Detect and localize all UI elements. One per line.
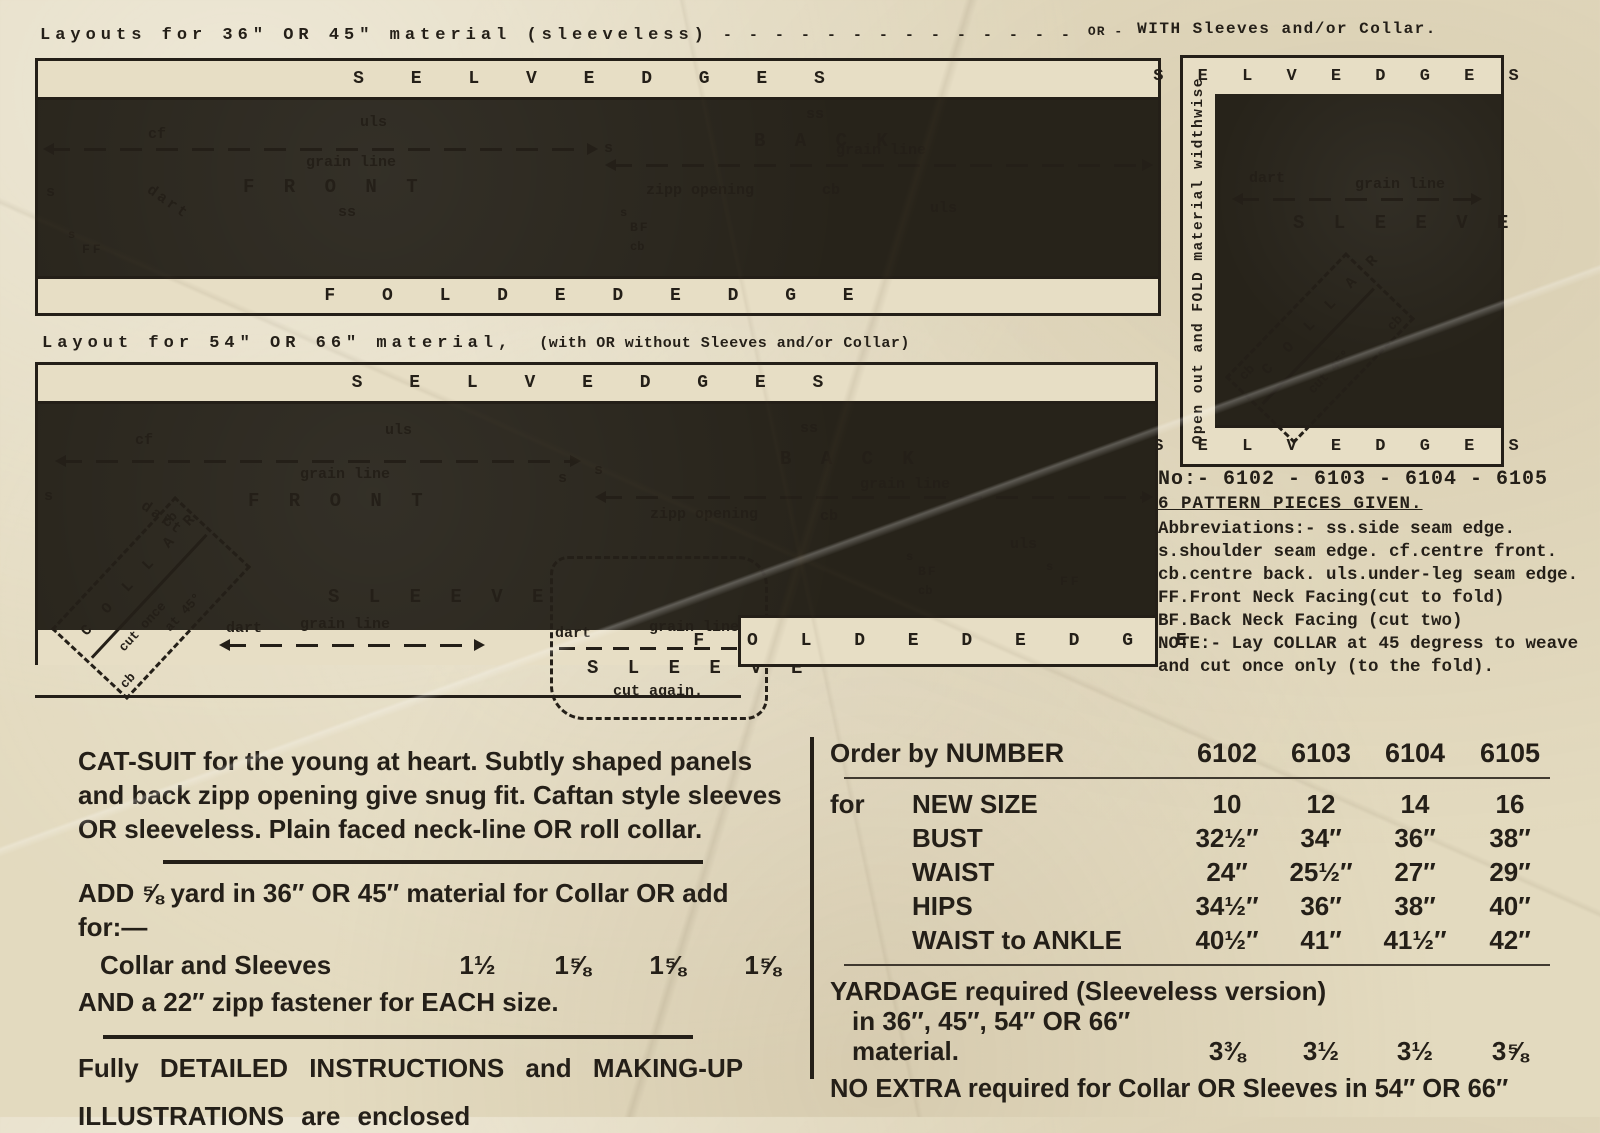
yardage-value: 3½ (1368, 1036, 1462, 1067)
zipp-opening-label: zipp opening (646, 182, 754, 199)
cb-label: cb (1384, 312, 1406, 334)
zipp-fastener-line: AND a 22″ zipp fastener for EACH size. (78, 985, 802, 1019)
pattern-piece-back (600, 104, 1152, 238)
size-row-label: HIPS (912, 891, 1180, 922)
yardage-line: in 36″, 45″, 54″ OR 66″ (852, 1006, 1566, 1036)
front-piece-label: F R O N T (248, 490, 432, 512)
cb-label: cb (820, 508, 838, 525)
grain-line (48, 148, 593, 151)
dart-label: dart (555, 625, 591, 642)
no-extra-line: NO EXTRA required for Collar OR Sleeves … (830, 1075, 1566, 1104)
grain-line (1237, 198, 1477, 201)
layout2-title-row: Layout for 54″ OR 66″ material, (with OR… (42, 334, 910, 353)
title-dashes: - - - - - - - - - - - - - - (723, 27, 1074, 44)
abbreviations-line: Abbreviations:- ss.side seam edge. (1158, 518, 1600, 541)
order-size-block: Order by NUMBER 6102 6103 6104 6105 for … (830, 738, 1566, 1130)
column-divider-line (810, 737, 814, 1079)
abbreviations-line: FF.Front Neck Facing(cut to fold) (1158, 587, 1600, 610)
size-value: 36″ (1368, 823, 1462, 854)
selvedges-strip: S E L V E D G E S (1183, 425, 1501, 464)
with-sleeves-label: WITH Sleeves and/or Collar. (1137, 20, 1437, 38)
grain-line-label: grain line (860, 476, 950, 493)
folded-edge-strip: F O L D E D E D G E (38, 276, 1158, 313)
size-value: 27″ (1368, 857, 1462, 888)
size-value: 29″ (1462, 857, 1558, 888)
collar-sleeves-label: Collar and Sleeves (100, 950, 430, 981)
grain-line-label: grain line (300, 616, 390, 633)
cb-label: cb (630, 240, 644, 254)
instructions-line: ILLUSTRATIONS are enclosed (78, 1099, 802, 1133)
folded-edge-label: F O L D E D E D G E (693, 631, 1202, 651)
uls-label: uls (385, 422, 412, 439)
bf-label: BF (918, 564, 938, 579)
description-line: OR sleeveless. Plain faced neck-line OR … (78, 812, 802, 846)
layout1-title: Layouts for 36″ OR 45″ material (sleevel… (40, 26, 709, 45)
at-45-label: at 45° (162, 590, 205, 634)
description-line: CAT-SUIT for the young at heart. Subtly … (78, 744, 802, 778)
collar-sleeves-row: Collar and Sleeves 1½ 1⅝ 1⅝ 1⅝ (100, 950, 802, 981)
pattern-number: 6104 (1368, 738, 1462, 769)
yardage-values-row: material. 3⅜ 3½ 3½ 3⅝ (830, 1036, 1566, 1067)
size-value: 12 (1274, 789, 1368, 820)
cut-45-label: cut 45° (1305, 347, 1354, 397)
cutting-layout-54-66: S E L V E D G E S cf uls grain line F R … (35, 362, 1158, 665)
size-table-row: WAIST 24″ 25½″ 27″ 29″ (830, 857, 1566, 888)
s-label: s (46, 184, 55, 201)
size-value: 41½″ (1368, 925, 1462, 956)
s-label: s (44, 488, 53, 505)
uls-label: uls (1010, 536, 1037, 553)
cf-label: cf (135, 432, 153, 449)
size-row-label: NEW SIZE (912, 789, 1180, 820)
s-label: s (906, 550, 913, 564)
cf-label: cf (148, 126, 166, 143)
size-row-label: BUST (912, 823, 1180, 854)
selvedges-label: S E L V E D G E S (1153, 67, 1530, 86)
fabric-area-2: cf uls grain line F R O N T s s dart ss … (38, 404, 1155, 630)
grain-line (610, 164, 1148, 167)
pattern-info-block: No:- 6102 - 6103 - 6104 - 6105 6 PATTERN… (1158, 468, 1600, 679)
size-value: 34″ (1274, 823, 1368, 854)
dart-label: dart (1249, 170, 1285, 187)
s-label: s (604, 140, 613, 157)
collar-sleeves-value: 1⅝ (525, 950, 620, 981)
layout2-subtitle: (with OR without Sleeves and/or Collar) (539, 335, 910, 352)
selvedges-label: S E L V E D G E S (1153, 437, 1530, 456)
order-by-label: Order by NUMBER (830, 738, 1180, 769)
s-label: s (68, 228, 75, 242)
s-label: s (558, 470, 567, 487)
front-piece-label: F R O N T (243, 176, 427, 198)
size-value: 40½″ (1180, 925, 1274, 956)
size-value: 25½″ (1274, 857, 1368, 888)
sleeve-piece-label: S L E E V E (328, 586, 552, 608)
size-value: 32½″ (1180, 823, 1274, 854)
ss-label: ss (806, 106, 824, 123)
selvedges-label: S E L V E D G E S (353, 69, 843, 89)
size-value: 24″ (1180, 857, 1274, 888)
grain-line-label: grain line (306, 154, 396, 171)
zipp-opening-label: zipp opening (650, 506, 758, 523)
pattern-numbers-line: No:- 6102 - 6103 - 6104 - 6105 (1158, 468, 1600, 491)
size-value: 34½″ (1180, 891, 1274, 922)
description-block: CAT-SUIT for the young at heart. Subtly … (78, 744, 802, 1133)
uls-label: uls (930, 200, 957, 217)
bf-label: BF (630, 220, 650, 235)
cut-again-label: cut again. (613, 683, 703, 700)
size-table-row: HIPS 34½″ 36″ 38″ 40″ (830, 891, 1566, 922)
order-number-row: Order by NUMBER 6102 6103 6104 6105 (830, 738, 1566, 769)
fabric-area-1: cf uls grain line F R O N T ss s dart s … (38, 100, 1158, 276)
cb-label: cb (117, 670, 139, 692)
pattern-number: 6105 (1462, 738, 1558, 769)
yardage-value: 3⅝ (1462, 1036, 1558, 1067)
pieces-given-line: 6 PATTERN PIECES GIVEN. (1158, 493, 1600, 516)
yardage-value: 3½ (1274, 1036, 1368, 1067)
size-table-row: WAIST to ANKLE 40½″ 41″ 41½″ 42″ (830, 925, 1566, 956)
yardage-value: 3⅜ (1180, 1036, 1274, 1067)
number-text: NUMBER (946, 738, 1065, 768)
size-value: 16 (1462, 789, 1558, 820)
ff-label: FF (1060, 574, 1082, 589)
size-value: 40″ (1462, 891, 1558, 922)
size-row-label: WAIST to ANKLE (912, 925, 1180, 956)
cut-once-label: cut once (116, 599, 170, 655)
for-label: for (830, 789, 912, 820)
grain-line-label: grain line (1355, 176, 1445, 193)
size-value: 36″ (1274, 891, 1368, 922)
pattern-number: 6103 (1274, 738, 1368, 769)
size-value: 42″ (1462, 925, 1558, 956)
yardage-line: YARDAGE required (Sleeveless version) (830, 976, 1566, 1006)
size-value: 38″ (1462, 823, 1558, 854)
size-table-row: for NEW SIZE 10 12 14 16 (830, 789, 1566, 820)
selvedges-label: S E L V E D G E S (352, 373, 842, 393)
order-by-text: Order by (830, 738, 938, 768)
size-value: 14 (1368, 789, 1462, 820)
size-value: 38″ (1368, 891, 1462, 922)
cb-label: cb (918, 584, 932, 598)
ss-label: ss (800, 420, 818, 437)
layout1-title-row: Layouts for 36″ OR 45″ material (sleevel… (40, 26, 1560, 45)
divider-rule (163, 860, 703, 864)
collar-sleeves-value: 1⅝ (620, 950, 715, 981)
size-value: 41″ (1274, 925, 1368, 956)
grain-line-label: grain line (836, 142, 926, 159)
folded-edge-label: F O L D E D E D G E (324, 286, 871, 306)
collar-sleeves-value: 1⅝ (715, 950, 810, 981)
cb-label: cb (822, 182, 840, 199)
fold-instruction-margin: Open out and FOLD material widthwise (1183, 94, 1215, 428)
or-label: OR - (1088, 24, 1123, 39)
divider-rule (103, 1035, 693, 1039)
description-line: and back zipp opening give snug fit. Caf… (78, 778, 802, 812)
collar-note-line: and cut once only (to the fold). (1158, 656, 1600, 679)
fabric-area-panel: dart grain line S L E E V E cb C O L L A… (1215, 94, 1501, 428)
s-label: s (594, 462, 603, 479)
grain-line (600, 496, 1148, 499)
collar-note-line: NOTE:- Lay COLLAR at 45 degress to weave (1158, 633, 1600, 656)
layout2-title: Layout for 54″ OR 66″ material, (42, 334, 513, 353)
fold-instruction-label: Open out and FOLD material widthwise (1191, 77, 1207, 444)
size-row-label: WAIST (912, 857, 1180, 888)
abbreviations-line: BF.Back Neck Facing (cut two) (1158, 610, 1600, 633)
cb-label: cb (1236, 362, 1258, 384)
pattern-number: 6102 (1180, 738, 1274, 769)
cutting-layout-sleeve-collar: S E L V E D G E S Open out and FOLD mate… (1180, 55, 1504, 467)
dart-label: dart (226, 620, 262, 637)
table-rule (844, 777, 1550, 779)
add-yardage-line: ADD ⅝ yard in 36″ OR 45″ material for Co… (78, 876, 802, 910)
s-label: s (620, 206, 627, 220)
cutting-layout-36-45: S E L V E D G E S cf uls grain line F R … (35, 58, 1161, 316)
uls-label: uls (360, 114, 387, 131)
grain-line-label: grain line (300, 466, 390, 483)
s-label: s (1046, 560, 1053, 574)
abbreviations-line: cb.centre back. uls.under-leg seam edge. (1158, 564, 1600, 587)
collar-sleeves-value: 1½ (430, 950, 525, 981)
table-rule (844, 964, 1550, 966)
yardage-material-label: material. (852, 1036, 1180, 1067)
abbreviations-line: s.shoulder seam edge. cf.centre front. (1158, 541, 1600, 564)
pattern-envelope-back: { "colors":{"paper":"#e7dec5","ink":"#24… (0, 0, 1600, 1117)
instructions-line: Fully DETAILED INSTRUCTIONS and MAKING-U… (78, 1051, 802, 1085)
add-yardage-line: for:— (78, 910, 802, 944)
ss-label: ss (338, 204, 356, 221)
size-table-row: BUST 32½″ 34″ 36″ 38″ (830, 823, 1566, 854)
yardage-block: YARDAGE required (Sleeveless version) in… (830, 976, 1566, 1067)
size-value: 10 (1180, 789, 1274, 820)
grain-line (224, 644, 480, 647)
folded-edge-strip: F O L D E D E D G E (738, 615, 1158, 667)
selvedges-strip: S E L V E D G E S (38, 365, 1155, 404)
selvedges-strip: S E L V E D G E S (1183, 58, 1501, 97)
back-piece-label: B A C K (780, 448, 923, 470)
ff-label: FF (82, 242, 104, 257)
sleeve-piece-label: S L E E V E (1293, 212, 1517, 234)
selvedges-strip: S E L V E D G E S (38, 61, 1158, 100)
grain-line (60, 460, 576, 463)
